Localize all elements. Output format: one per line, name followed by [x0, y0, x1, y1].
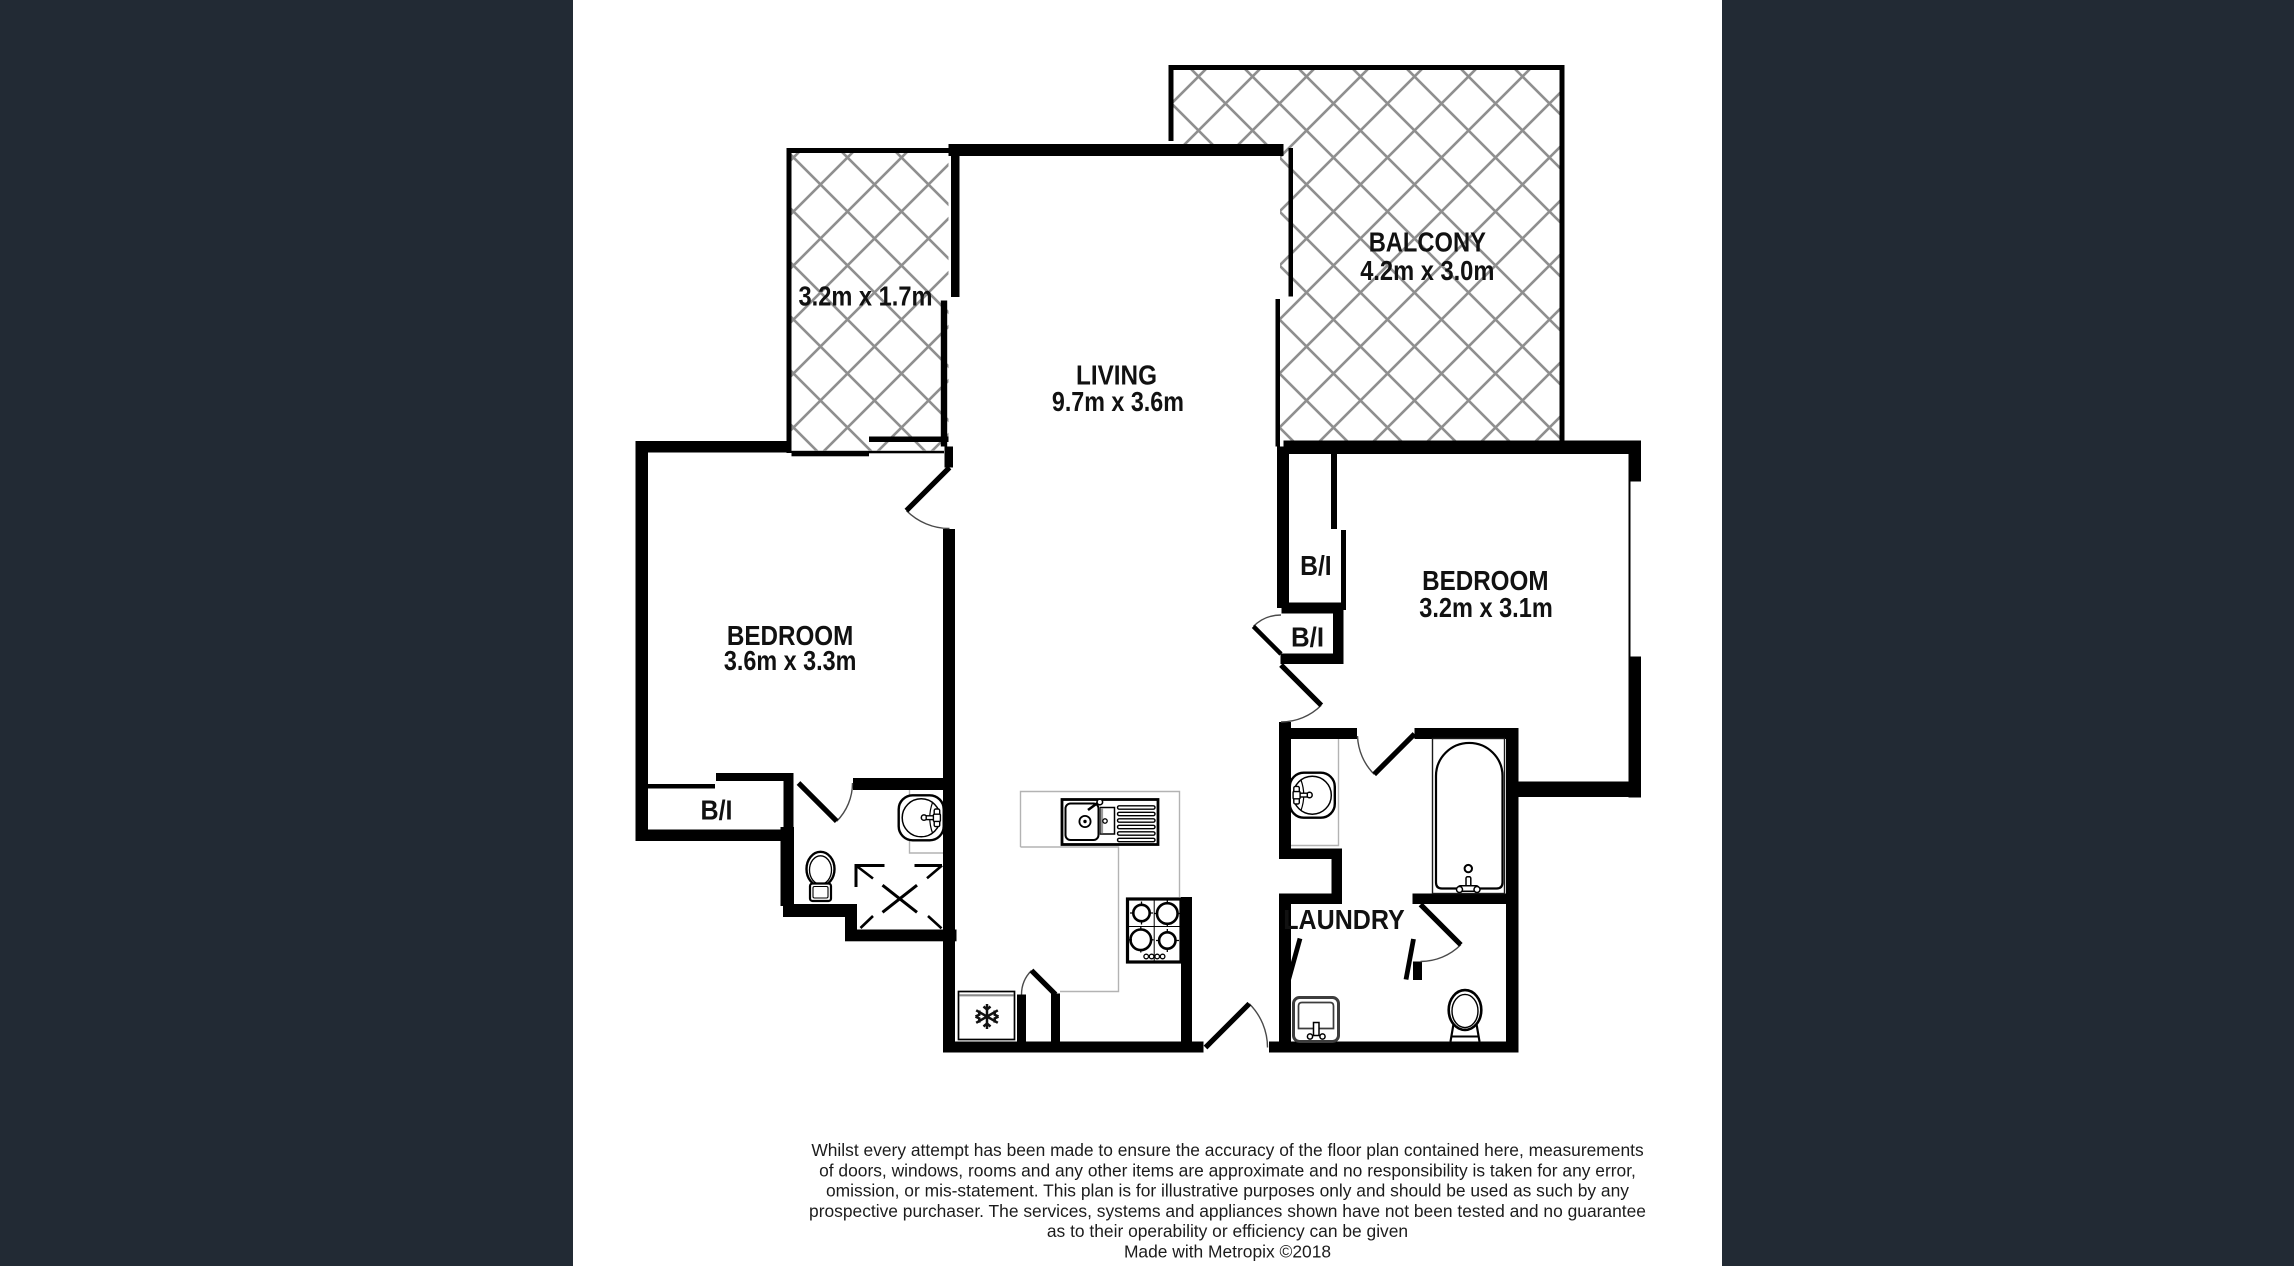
svg-text:3.2m x 3.1m: 3.2m x 3.1m: [1419, 592, 1553, 623]
svg-text:Whilst every attempt has been: Whilst every attempt has been made to en…: [811, 1140, 1644, 1160]
svg-text:Made with Metropix ©2018: Made with Metropix ©2018: [1124, 1242, 1331, 1262]
svg-text:as to their operability or eff: as to their operability or efficiency ca…: [1047, 1221, 1408, 1241]
svg-text:LAUNDRY: LAUNDRY: [1283, 904, 1405, 935]
svg-text:B/I: B/I: [1300, 550, 1332, 581]
svg-text:9.7m x 3.6m: 9.7m x 3.6m: [1052, 386, 1184, 417]
svg-text:B/I: B/I: [1291, 622, 1324, 653]
svg-text:prospective purchaser. The ser: prospective purchaser. The services, sys…: [809, 1201, 1646, 1221]
svg-text:B/I: B/I: [701, 795, 733, 826]
svg-text:omission, or mis-statement. Th: omission, or mis-statement. This plan is…: [826, 1181, 1629, 1201]
svg-text:3.6m x 3.3m: 3.6m x 3.3m: [724, 645, 857, 676]
svg-text:3.2m x 1.7m: 3.2m x 1.7m: [799, 281, 933, 312]
svg-text:BALCONY: BALCONY: [1369, 227, 1487, 258]
svg-text:4.2m x 3.0m: 4.2m x 3.0m: [1360, 255, 1494, 286]
svg-text:of doors, windows, rooms and a: of doors, windows, rooms and any other i…: [819, 1160, 1636, 1180]
